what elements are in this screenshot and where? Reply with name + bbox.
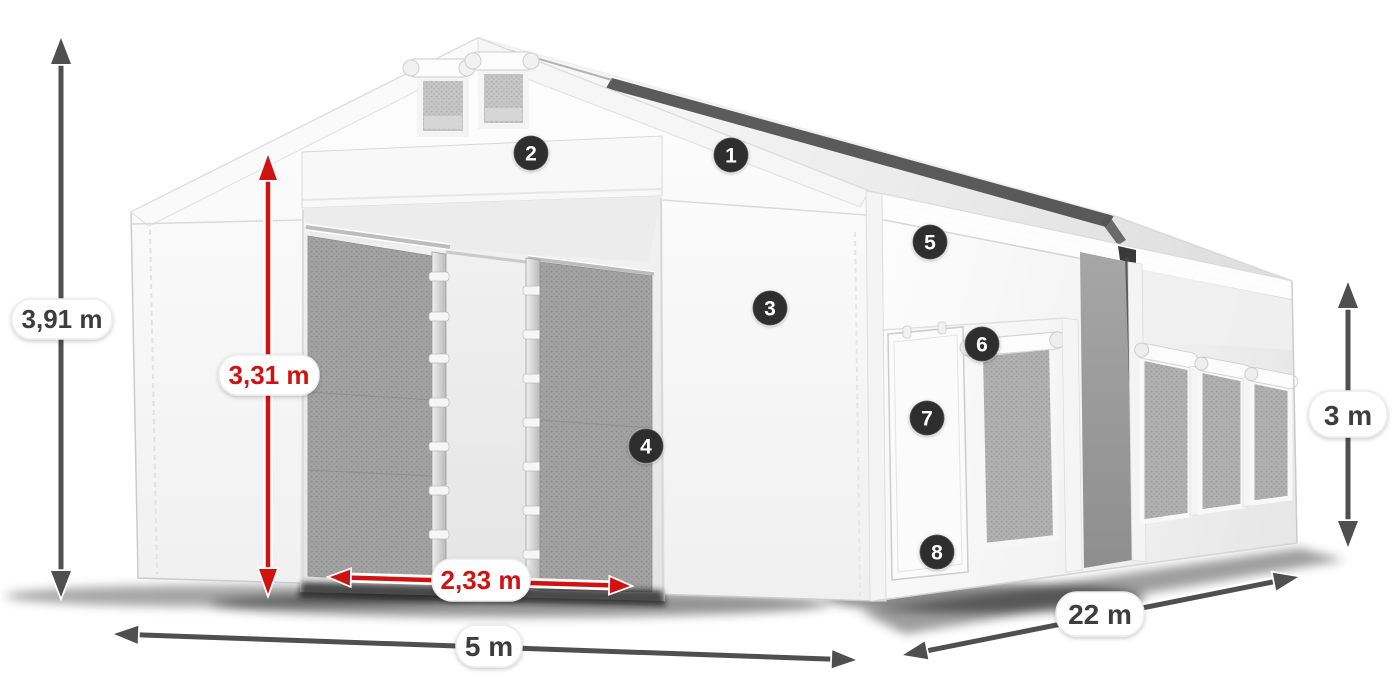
svg-text:7: 7 [921,408,933,431]
svg-text:1: 1 [725,145,737,168]
front-corner-post [866,191,886,601]
dim-total-height-label: 3,91 m [22,304,103,334]
tent-illustration [131,38,1299,606]
svg-text:2: 2 [525,143,537,166]
callout-badge-8: 8 [920,535,955,570]
callout-badge-6: 6 [965,327,1000,362]
svg-text:4: 4 [640,436,652,459]
tent-dimension-diagram: 3,91 m 3,31 m 2,33 m 5 m [0,0,1400,700]
inner-partition-door-2 [523,258,654,592]
dim-front-width-label: 5 m [465,631,513,662]
side-window-1 [1133,342,1199,522]
callout-badge-2: 2 [514,136,549,171]
svg-text:3: 3 [764,298,776,321]
inner-partition-door-1 [306,227,450,588]
callout-badge-3: 3 [753,291,788,326]
side-doorway-opening [1080,246,1136,568]
dim-entrance-width-label: 2,33 m [441,565,522,595]
callout-badge-7: 7 [910,401,945,436]
svg-text:6: 6 [976,334,988,357]
dim-front-width: 5 m [114,625,856,668]
window-roller-icon [403,59,475,77]
dim-total-height: 3,91 m [12,38,112,597]
callout-badge-5: 5 [913,225,948,260]
svg-text:8: 8 [931,542,943,565]
svg-text:5: 5 [924,232,936,255]
entrance-opening [298,196,666,606]
callout-badge-1: 1 [714,138,749,173]
dim-side-wall-height: 3 m [1309,282,1387,547]
dim-side-length-label: 22 m [1068,599,1132,630]
dim-entrance-height-label: 3,31 m [229,360,310,390]
side-window-3 [1244,366,1299,503]
window-roller-icon [465,52,539,70]
dim-side-wall-height-label: 3 m [1324,400,1372,431]
callout-badge-4: 4 [629,429,664,464]
